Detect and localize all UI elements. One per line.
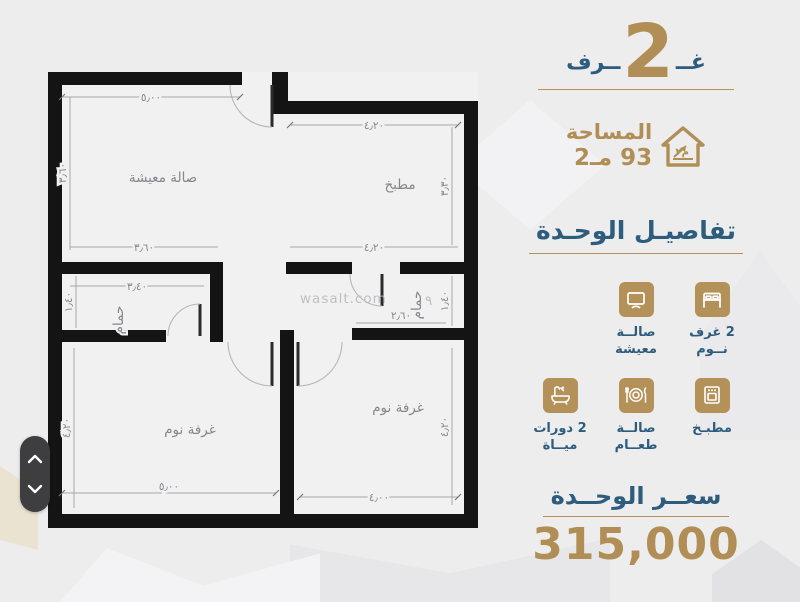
amenity-label-line1: صالــة (616, 421, 655, 436)
dim-bedroom2-right: ٤٫٢٠ (439, 417, 451, 437)
price-value: 315,000 (516, 519, 756, 570)
divider (529, 253, 743, 254)
amenity-label-line1: 2 دورات (533, 421, 586, 436)
dim-kitchen-top: ٤٫٢٠ (364, 120, 384, 132)
room-label-bedroom2: غرفة نوم (372, 400, 424, 416)
amenity-dining-room: صالــة طعــام (598, 378, 674, 455)
amenity-label-line2: معيشة (615, 342, 657, 357)
room-label-bedroom1: غرفة نوم (164, 422, 216, 438)
rooms-word-left: ــرف (566, 50, 620, 85)
dim-living-top: ٥٫٠٠ (141, 92, 161, 104)
details-section: تفاصيـل الوحـدة (516, 216, 756, 254)
amenity-spacer (522, 282, 598, 359)
dim-bedroom2-bottom: ٤٫٠٠ (369, 492, 389, 504)
dim-bedroom1-left: ٤٫٢٠ (61, 418, 73, 438)
amenity-label-line1: 2 غرف (689, 325, 735, 340)
rooms-word-right: غــ (676, 50, 706, 85)
scroll-up-button[interactable] (25, 451, 45, 467)
watermark: wasalt.com (300, 291, 387, 307)
dim-kitchen-bottom: ٤٫٢٠ (364, 242, 384, 254)
dining-plate-icon (619, 378, 654, 413)
divider (543, 516, 729, 517)
room-label-bath1: حمام (111, 306, 127, 335)
price-section: سعــر الوحــدة 315,000 (516, 482, 756, 570)
screen: { "colors": { "gold": "#b18e55", "blue":… (0, 0, 800, 602)
bathtub-icon (543, 378, 578, 413)
house-area-icon: م٢ (660, 122, 706, 170)
dim-bath2-right: ١٫٤٠ (439, 291, 451, 311)
dim-bedroom1-bottom: ٥٫٠٠ (159, 481, 179, 493)
floorplan: ٥٫٠٠ ٤٫٢٠ ٣٫٦٠ ٣٫٦٠ ٤٫٢٠ ٣٫٣٠ ٣٫٤٠ ١٫٤٠ … (0, 0, 520, 602)
svg-text:م٢: م٢ (676, 147, 689, 158)
room-label-bath2: حمام (409, 291, 425, 320)
area-value: 93 مـ2 (566, 144, 652, 173)
scroll-control (20, 436, 50, 512)
dim-bath1-top: ٣٫٤٠ (127, 281, 147, 293)
dim-living-bottom: ٣٫٦٠ (134, 242, 154, 254)
amenity-bathrooms: 2 دورات ميــاة (522, 378, 598, 455)
amenity-bedrooms: 2 غرف نــوم (674, 282, 750, 359)
amenity-living-room: صالــة معيشة (598, 282, 674, 359)
area-block: م٢ المساحة 93 مـ2 (516, 120, 756, 173)
dim-bath1-left: ١٫٤٠ (63, 292, 75, 312)
oven-icon (695, 378, 730, 413)
dim-living-left: ٣٫٦٠ (57, 163, 69, 183)
rooms-headline: غــ 2 ــرف (516, 20, 756, 90)
amenity-label-line1: مطبـخ (692, 421, 732, 436)
bed-icon (695, 282, 730, 317)
dim-kitchen-right: ٣٫٣٠ (439, 176, 451, 196)
info-panel: غــ 2 ــرف م٢ المساحة 93 مـ2 تفاصيـل الو… (516, 0, 756, 602)
room-label-kitchen: مطبخ (384, 177, 415, 193)
amenities-grid: 2 غرف نــوم صالــة معيشة (516, 282, 756, 455)
rooms-count: 2 (620, 20, 676, 85)
amenity-label-line2: نــوم (696, 342, 727, 357)
amenity-label-line2: ميــاة (543, 438, 578, 453)
amenity-label-line1: صالــة (616, 325, 655, 340)
details-title: تفاصيـل الوحـدة (516, 216, 756, 245)
amenity-label-line2: طعــام (615, 438, 658, 453)
area-label: المساحة (566, 120, 652, 144)
room-label-living: صالة معيشة (129, 170, 197, 186)
tv-icon (619, 282, 654, 317)
chevron-down-icon (27, 484, 43, 494)
amenity-kitchen: مطبـخ (674, 378, 750, 455)
chevron-up-icon (27, 454, 43, 464)
scroll-down-button[interactable] (25, 481, 45, 497)
watermark-logo: ٩ (425, 293, 432, 309)
price-title: سعــر الوحــدة (516, 482, 756, 510)
